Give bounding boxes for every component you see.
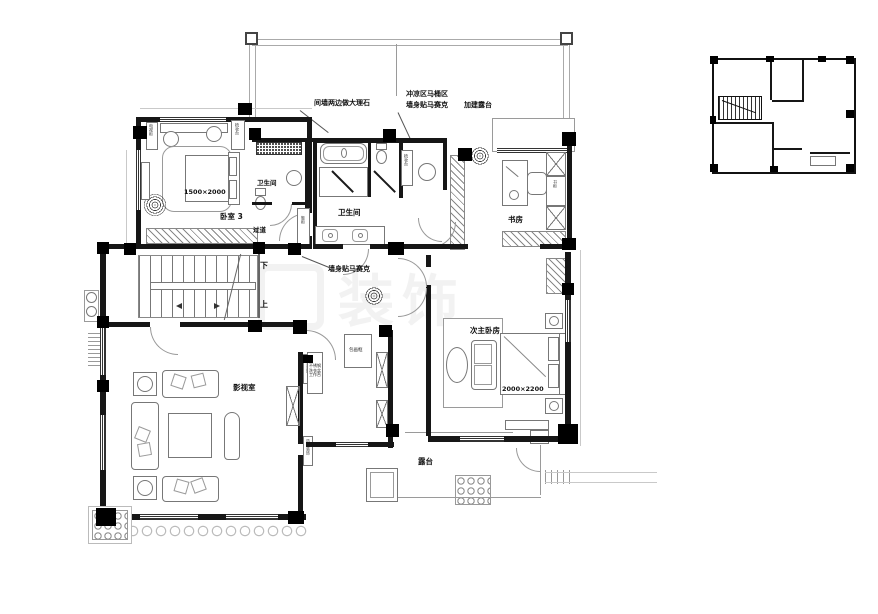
shoe-cabinet — [297, 208, 310, 246]
speaker-unit — [224, 412, 240, 460]
outer-sill — [140, 108, 312, 109]
wall-segment — [106, 322, 150, 327]
toilet-bowl — [376, 150, 387, 164]
key-plan-column — [846, 56, 854, 64]
window — [100, 415, 106, 470]
key-plan-column — [710, 56, 718, 64]
ac-fan — [86, 306, 97, 317]
door-arc — [516, 448, 540, 472]
column-marker — [96, 508, 116, 526]
column-marker — [388, 242, 404, 255]
wardrobe — [146, 228, 258, 244]
bookcase — [546, 152, 566, 176]
key-plan-wall — [810, 152, 850, 154]
window — [140, 514, 198, 520]
column-marker — [288, 243, 301, 255]
outer-sill — [126, 150, 127, 245]
window — [336, 442, 368, 447]
window — [100, 320, 106, 375]
bookcase — [546, 206, 566, 230]
sofa — [162, 476, 219, 502]
key-plan-column — [846, 164, 854, 172]
column-marker — [383, 129, 396, 142]
toilet — [376, 143, 387, 150]
key-plan-wall — [770, 60, 772, 100]
throw-pillow — [137, 442, 152, 457]
key-plan-column — [818, 56, 826, 62]
key-plan-column — [766, 56, 774, 62]
wall-segment — [428, 244, 468, 249]
wall-segment — [426, 255, 431, 267]
garden-path — [545, 482, 657, 483]
washbasin — [286, 170, 302, 186]
key-plan-column — [710, 116, 716, 124]
column-marker — [253, 242, 265, 254]
column-marker — [386, 424, 399, 437]
wall-segment — [292, 202, 306, 205]
column-marker — [248, 320, 262, 332]
powder-dresser-label: 梳妆台 — [404, 154, 408, 166]
frame-cabinet-label: 包画框 — [349, 347, 363, 353]
room-label-study: 书房 — [508, 214, 523, 225]
office-chair — [527, 172, 547, 195]
garden-path — [545, 472, 657, 473]
bookcase-label: 书柜 — [553, 180, 557, 188]
side-table-top — [137, 376, 153, 392]
flower-bed — [112, 524, 308, 538]
grid-marker — [245, 32, 258, 45]
column-marker — [133, 126, 147, 139]
stair-arrow — [176, 303, 182, 309]
column-marker — [97, 380, 109, 392]
grid-marker — [560, 32, 573, 45]
lamp — [549, 316, 559, 326]
terrace-edge — [405, 432, 513, 433]
column-marker — [458, 148, 472, 161]
wall-segment — [426, 320, 431, 436]
annotation-added-terrace: 加建露台 — [464, 100, 492, 110]
column-marker — [97, 316, 109, 328]
key-plan-wall — [772, 122, 774, 170]
column-marker — [562, 238, 576, 250]
flower-bed — [455, 475, 491, 505]
key-plan-wall — [774, 148, 802, 150]
window — [460, 436, 504, 442]
key-plan-column — [710, 164, 718, 172]
wall-segment — [368, 140, 371, 197]
door-arc — [150, 327, 178, 355]
column-marker — [293, 320, 307, 334]
screen-panel — [450, 155, 465, 250]
wall-segment — [567, 135, 572, 249]
wall-segment — [443, 138, 447, 190]
room-label-terrace: 露台 — [418, 456, 433, 467]
bedroom3-dresser-label: 梳妆台 — [235, 123, 239, 135]
stair-rail — [150, 282, 256, 290]
wall-segment — [313, 244, 343, 249]
room-label-media: 影视室 — [233, 382, 256, 393]
wall-segment — [258, 250, 260, 318]
pillow — [229, 157, 237, 176]
terrace-step — [505, 420, 549, 430]
stairs-up-label: 上 — [260, 299, 268, 310]
key-plan-box — [810, 156, 836, 166]
wall-segment — [305, 138, 309, 208]
column-marker — [562, 132, 576, 146]
annotation-marble: 间墙两边做大理石 — [314, 98, 370, 108]
plant — [470, 146, 490, 166]
window — [226, 514, 278, 520]
wall-segment — [252, 202, 272, 205]
room-label-second-master: 次主卧房 — [470, 325, 500, 336]
planter-box-inner — [370, 472, 394, 498]
stair-arrow — [214, 303, 220, 309]
tv-cabinet-label: 电视柜 — [149, 124, 153, 136]
faucet — [341, 148, 347, 158]
toilet — [255, 188, 266, 196]
key-plan-wall — [714, 122, 772, 124]
column-marker — [558, 424, 578, 444]
shower-door — [373, 170, 396, 193]
column-marker — [249, 128, 261, 140]
wall-cabinet — [376, 352, 388, 388]
key-plan-wall — [802, 60, 804, 102]
side-table-top — [137, 480, 153, 496]
room-label-corridor: 过道 — [253, 224, 266, 234]
stool — [163, 131, 179, 147]
sink-drain — [328, 233, 333, 238]
lamp — [549, 401, 559, 411]
column-marker — [238, 103, 252, 115]
coffee-table — [168, 413, 212, 458]
key-plan-column — [770, 166, 778, 172]
column-marker — [303, 355, 313, 363]
pillow — [229, 180, 237, 199]
outer-line — [580, 250, 581, 446]
plant — [364, 286, 384, 306]
pillow — [548, 364, 559, 388]
bed-dimension: 2000×2200 — [502, 385, 544, 393]
column-marker — [288, 511, 304, 524]
ac-fan — [86, 292, 97, 303]
coil-fixture — [88, 330, 100, 366]
column-marker — [379, 325, 392, 337]
key-plan-thumbnail — [710, 56, 856, 174]
key-plan-column — [846, 110, 854, 118]
room-label-bathroom1: 卫生间 — [257, 177, 277, 187]
terrace-edge — [540, 445, 541, 495]
key-plan-wall — [772, 100, 802, 102]
column-marker — [97, 242, 109, 254]
room-label-bedroom3: 卧室 3 — [220, 211, 243, 222]
window — [160, 117, 226, 122]
sofa-cushion — [474, 344, 492, 364]
wall-segment — [565, 252, 571, 444]
wall-segment — [180, 322, 302, 327]
stool — [206, 126, 222, 142]
stairs-down-label: 下 — [260, 260, 268, 271]
key-plan-stairs — [718, 96, 762, 120]
worktable-note: 不锈钢洗衣盆工作台 — [309, 364, 323, 378]
floor-plan-canvas: 装饰 间墙两边做大理石 冲凉区马桶区 墙身贴马赛克 加建露台 电视柜 梳妆台 1… — [0, 0, 878, 614]
annotation-shower-line2: 墙身贴马赛克 — [406, 100, 448, 110]
oval-table — [446, 347, 468, 383]
bed-dimension: 1500×2000 — [184, 188, 226, 196]
watermark-logo-icon — [258, 264, 324, 330]
feature-wall-panel — [286, 386, 300, 426]
window — [565, 300, 571, 342]
annotation-shower-line1: 冲凉区马桶区 — [406, 89, 448, 99]
shoe-cabinet-label: 鞋柜 — [301, 216, 305, 224]
column-marker — [562, 283, 574, 295]
grid-line — [252, 39, 568, 46]
leader-line — [398, 112, 412, 140]
pillow — [548, 337, 559, 361]
mosaic-niche — [256, 142, 302, 155]
column-marker — [124, 243, 136, 255]
grid-line — [396, 44, 397, 96]
sink-drain — [358, 233, 363, 238]
desk-item — [509, 190, 519, 200]
room-label-bathroom2: 卫生间 — [338, 207, 361, 218]
bench — [141, 162, 150, 200]
annotation-wall-mosaic: 墙身贴马赛克 — [328, 264, 370, 274]
washbasin — [418, 163, 436, 181]
sofa-cushion — [474, 365, 492, 385]
